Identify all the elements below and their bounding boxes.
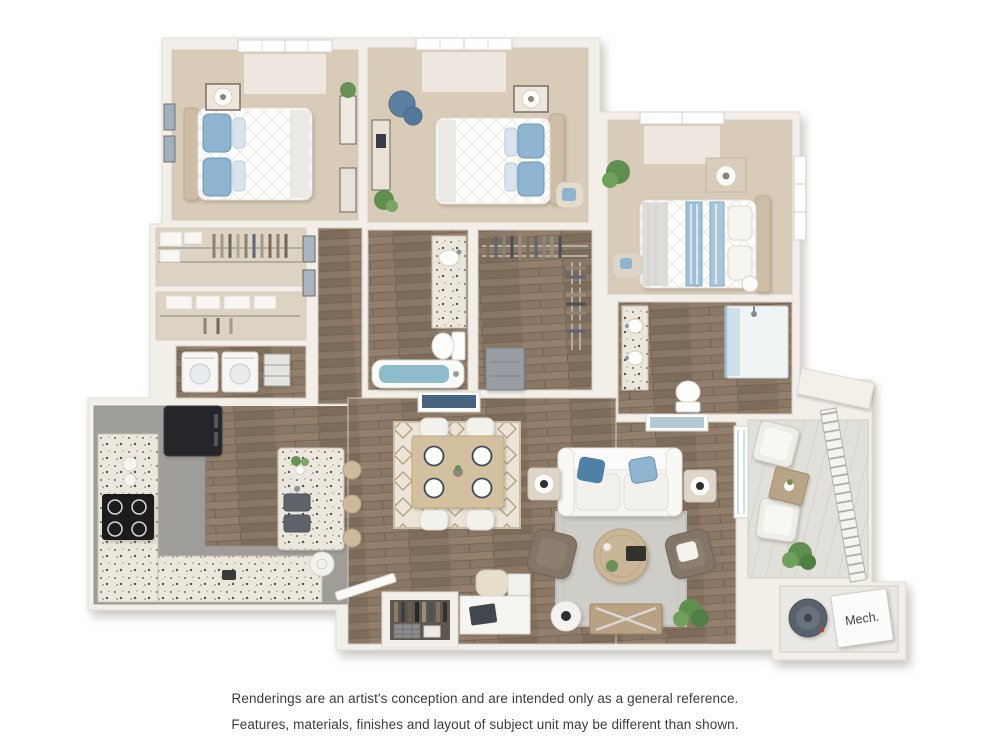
sofa <box>558 448 682 516</box>
wall-art-frame <box>164 136 175 162</box>
entry-closet <box>382 592 458 648</box>
throw-pillow <box>628 456 658 484</box>
disclaimer: Renderings are an artist's conception an… <box>0 686 970 738</box>
bedroom-bench <box>612 252 642 278</box>
wall-art-frame <box>303 236 315 262</box>
place-setting <box>473 447 492 466</box>
disclaimer-line-2: Features, materials, finishes and layout… <box>0 712 970 738</box>
place-setting <box>425 447 444 466</box>
nightstand-2 <box>514 86 548 112</box>
wire-cart <box>264 354 290 386</box>
laptop <box>469 603 497 625</box>
master-side-window <box>794 156 806 240</box>
wall-art-frame <box>303 270 315 296</box>
nightstand-1 <box>206 84 240 110</box>
floor-plan-page: Mech. Renderings are an artist's concept… <box>0 0 1000 750</box>
throw-pillow <box>576 456 606 484</box>
wire-basket <box>394 624 420 638</box>
sink <box>284 515 310 532</box>
side-table <box>684 470 716 502</box>
sink <box>439 250 459 266</box>
master-nightstand <box>706 158 746 192</box>
place-setting <box>425 479 444 498</box>
sink <box>284 494 310 511</box>
laundry-room <box>182 352 290 392</box>
garden-stool <box>310 552 334 576</box>
dining-chair <box>466 418 494 438</box>
patio-sliding-door <box>734 426 748 518</box>
counter-bottom <box>158 556 322 602</box>
bar-stool <box>343 529 361 547</box>
dining-chair <box>466 510 494 530</box>
kitchen-island <box>278 448 344 550</box>
dresser <box>486 348 524 390</box>
disclaimer-line-1: Renderings are an artist's conception an… <box>0 686 970 712</box>
bar-stool <box>343 495 361 513</box>
mech-unit: Mech. <box>831 588 894 647</box>
coffee-table <box>594 529 648 583</box>
water-heater <box>789 599 827 637</box>
shower <box>726 306 788 378</box>
hallway-floor <box>318 228 362 404</box>
bed-2 <box>436 114 564 204</box>
bedroom-1-window <box>238 40 332 94</box>
dining-chair <box>420 510 448 530</box>
sink <box>627 319 643 333</box>
side-table <box>528 468 560 500</box>
toilet <box>676 381 700 412</box>
bar-stool <box>343 461 361 479</box>
wall-art-frame <box>646 414 708 431</box>
canister <box>123 457 137 471</box>
floor-plan-rendering: Mech. <box>0 0 1000 750</box>
file-cabinet <box>508 574 530 595</box>
bed-1 <box>184 108 312 200</box>
lamp <box>742 276 758 292</box>
corner-chair <box>556 182 584 208</box>
media-console <box>590 604 662 634</box>
bedroom-2-window <box>416 38 512 92</box>
sink <box>627 351 643 365</box>
lamp <box>561 611 571 621</box>
master-bedroom-window <box>640 112 724 164</box>
desk-chair <box>476 570 508 596</box>
dining-chair <box>420 418 448 438</box>
drum-table <box>551 601 581 631</box>
cooktop <box>102 494 154 540</box>
place-setting <box>473 479 492 498</box>
bathtub <box>372 360 464 388</box>
wall-art-frame <box>418 392 480 412</box>
plant <box>340 82 356 98</box>
toilet <box>432 332 465 360</box>
canister <box>124 474 136 486</box>
wall-art-frame <box>164 104 175 130</box>
refrigerator <box>164 406 222 456</box>
